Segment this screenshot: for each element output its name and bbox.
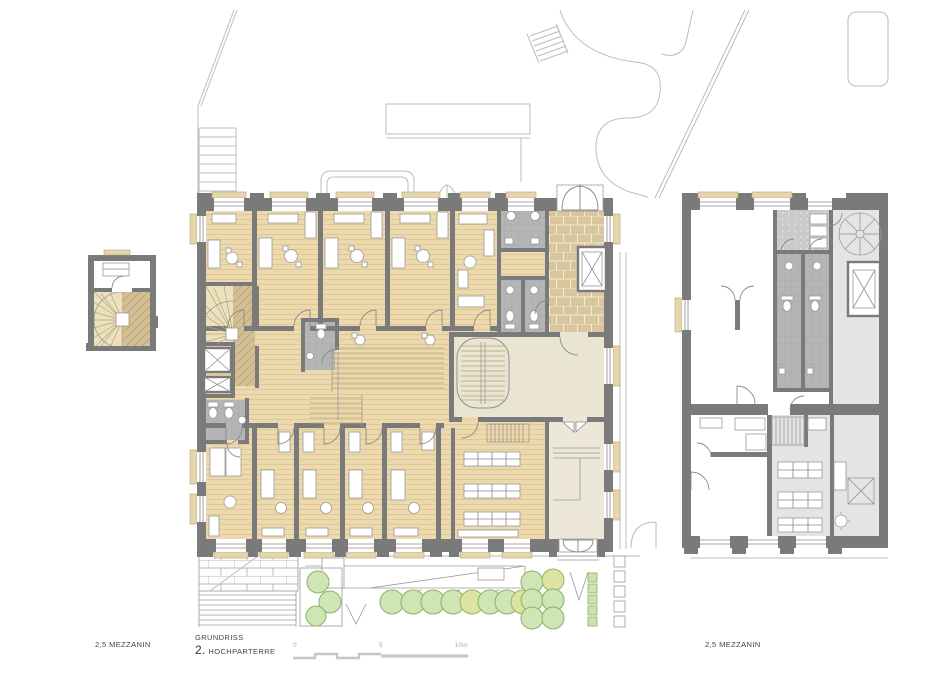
wc-toilet — [316, 324, 326, 339]
garden-entrance — [557, 539, 599, 560]
scale-tick-10: 10m — [454, 642, 468, 649]
scale-bar: 0 5 10m — [293, 642, 468, 660]
garden-marker-v — [346, 604, 366, 624]
stone-terrace — [199, 553, 298, 591]
seminar-tables — [458, 452, 520, 537]
drawing-subtitle: 2. HOCHPARTERRE — [195, 643, 275, 657]
left-mezzanine-plan — [86, 250, 158, 351]
elevator — [204, 348, 231, 372]
garden — [199, 553, 640, 629]
tree-cluster-east — [521, 569, 564, 629]
paver-squares — [614, 556, 625, 627]
scale-bar-graphic — [293, 651, 468, 661]
boundary-fence — [655, 10, 749, 198]
garden-steps — [199, 591, 296, 627]
canopy-outline — [386, 104, 530, 182]
sink — [531, 212, 540, 221]
main-entrance — [557, 185, 603, 211]
scale-tick-0: 0 — [293, 642, 297, 649]
sink — [307, 353, 314, 360]
sink — [785, 262, 793, 270]
sink — [813, 262, 821, 270]
exterior-stair-northeast — [527, 24, 568, 63]
courtyard-boundary-east — [620, 252, 656, 549]
exterior-stair-northwest — [199, 128, 236, 197]
main-floor-plan — [190, 185, 620, 560]
left-plan-label: 2,5 MEZZANIN — [95, 640, 151, 649]
level-number: 2. — [195, 643, 205, 657]
wc-toilet — [224, 402, 234, 419]
hedge-cells — [588, 573, 597, 626]
level-name: HOCHPARTERRE — [208, 647, 275, 656]
stair-hall-floor — [449, 332, 604, 417]
work-tables — [778, 462, 822, 532]
architectural-drawing — [0, 0, 950, 694]
garden-marker-v — [570, 572, 588, 600]
elevator — [848, 262, 880, 316]
driveway-curve — [560, 10, 660, 197]
elevator — [578, 247, 606, 291]
sink — [238, 416, 246, 424]
wc-toilet — [208, 402, 218, 419]
sink — [530, 286, 538, 294]
elevator — [204, 377, 231, 392]
floor-plan-sheet: 2,5 MEZZANIN GRUNDRISS 2. HOCHPARTERRE 0… — [0, 0, 950, 694]
sink — [506, 286, 514, 294]
right-plan-label: 2,5 MEZZANIN — [705, 640, 761, 649]
courtyard-structure — [848, 12, 888, 86]
tree-row — [380, 590, 535, 614]
sink — [507, 212, 516, 221]
bench — [103, 263, 129, 276]
annex-floor — [549, 417, 604, 539]
right-mezzanine-plan — [675, 192, 888, 554]
scale-tick-5: 5 — [379, 642, 383, 649]
drawing-title: GRUNDRISS — [195, 633, 244, 642]
